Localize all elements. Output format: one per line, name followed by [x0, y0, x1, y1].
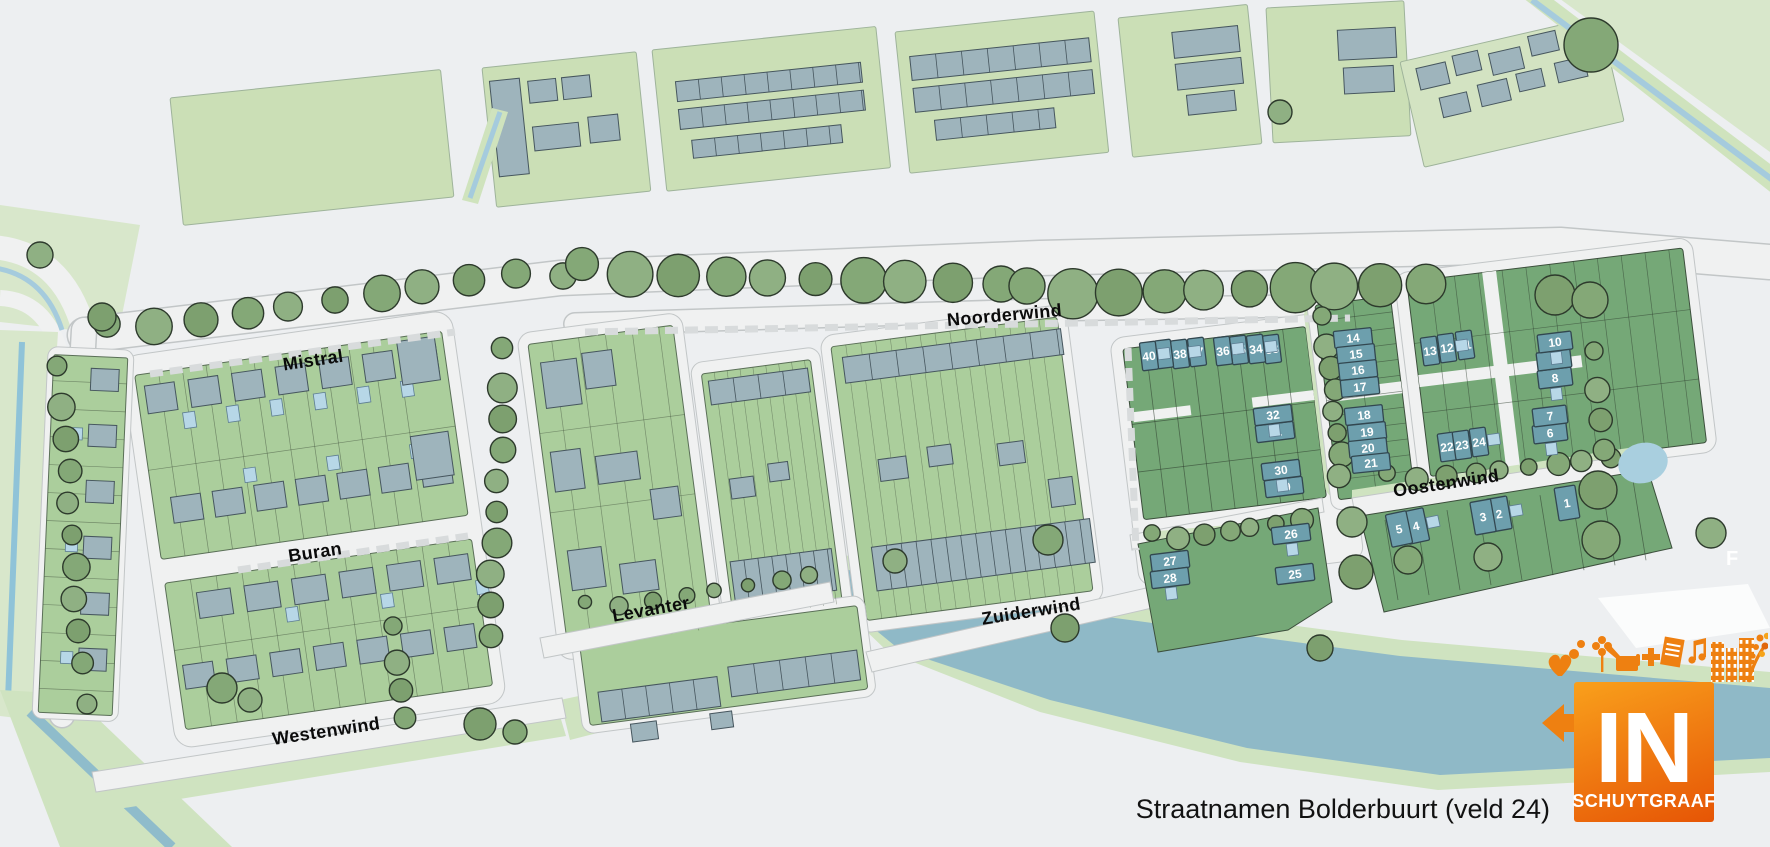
- tree-icon: [57, 492, 79, 514]
- lot-number: 32: [1266, 407, 1281, 423]
- tree-icon: [1593, 439, 1615, 461]
- tree-icon: [1585, 377, 1610, 402]
- tree-icon: [488, 373, 518, 403]
- tree-icon: [707, 257, 746, 296]
- tree-icon: [503, 720, 527, 744]
- lot-number: 16: [1351, 363, 1366, 378]
- tree-icon: [502, 259, 531, 288]
- tree-icon: [238, 688, 262, 712]
- tree-icon: [578, 595, 591, 608]
- tree-icon: [799, 263, 832, 296]
- tree-icon: [48, 393, 75, 420]
- tree-icon: [1051, 614, 1079, 642]
- logo-word: IN: [1595, 709, 1693, 787]
- tree-icon: [486, 501, 507, 522]
- tree-icon: [485, 469, 508, 492]
- tree-icon: [405, 270, 439, 304]
- lot-1: 1: [1554, 485, 1580, 521]
- lot-number: 23: [1454, 437, 1469, 453]
- tree-icon: [773, 571, 791, 589]
- tree-icon: [364, 275, 400, 311]
- tree-icon: [77, 694, 97, 714]
- tree-icon: [1323, 401, 1343, 421]
- lot-number: 13: [1422, 343, 1437, 359]
- tree-icon: [1241, 518, 1259, 536]
- tree-icon: [1143, 270, 1186, 313]
- note-paper-icon: [1660, 637, 1685, 668]
- tree-icon: [136, 308, 172, 344]
- tree-icon: [1144, 525, 1160, 541]
- tree-icon: [184, 303, 218, 337]
- tree-icon: [1095, 269, 1142, 316]
- logo-square: IN SCHUYTGRAAF: [1574, 682, 1714, 822]
- mistral-buran-westenwind-blocks: [120, 310, 507, 750]
- lot-number: 22: [1439, 439, 1454, 455]
- tree-icon: [1547, 453, 1570, 476]
- tree-icon: [1359, 264, 1402, 307]
- lot-number: 24: [1471, 434, 1486, 450]
- tree-icon: [1585, 342, 1603, 360]
- watering-can-icon: [1606, 646, 1640, 671]
- tree-icon: [389, 679, 412, 702]
- tree-icon: [207, 673, 237, 703]
- music-notes-icon: [1688, 638, 1706, 664]
- tree-icon: [1268, 100, 1292, 124]
- lot-number: 10: [1548, 334, 1563, 350]
- tree-icon: [1167, 527, 1190, 550]
- tree-icon: [62, 525, 82, 545]
- tree-icon: [1589, 408, 1612, 431]
- tree-icon: [933, 263, 972, 302]
- in-schuytgraaf-logo: IN SCHUYTGRAAF: [1540, 630, 1768, 830]
- tree-icon: [1009, 268, 1045, 304]
- tree-icon: [1339, 555, 1373, 589]
- tree-icon: [1184, 270, 1224, 310]
- tree-icon: [1313, 307, 1331, 325]
- lot-number: 28: [1163, 570, 1178, 586]
- field-block: [1118, 4, 1262, 157]
- tree-icon: [1582, 521, 1620, 559]
- tree-icon: [63, 553, 90, 580]
- lot-number: 18: [1357, 408, 1372, 423]
- tree-icon: [384, 650, 409, 675]
- tree-icon: [1579, 471, 1617, 509]
- tree-icon: [607, 251, 653, 297]
- field-block: [482, 52, 651, 207]
- tree-icon: [482, 528, 512, 558]
- tree-icon: [1307, 635, 1333, 661]
- tree-icon: [657, 254, 699, 296]
- site-plan-map: 1234567891011121314151617181920212223242…: [0, 0, 1770, 847]
- tree-icon: [566, 248, 599, 281]
- lot-number: 14: [1346, 331, 1361, 346]
- lot-number: 34: [1249, 341, 1264, 357]
- tree-icon: [478, 592, 503, 617]
- tree-icon: [384, 617, 402, 635]
- lot-number: 27: [1163, 553, 1178, 569]
- tree-icon: [1474, 543, 1502, 571]
- field-block: [652, 26, 891, 191]
- tree-icon: [61, 586, 86, 611]
- tree-icon: [1572, 282, 1608, 318]
- lot-17: 17: [1340, 377, 1380, 398]
- tree-icon: [53, 426, 78, 451]
- flower-icon: [1592, 636, 1612, 672]
- tree-icon: [883, 549, 907, 573]
- tree-icon: [27, 242, 53, 268]
- tree-icon: [58, 459, 82, 483]
- tree-icon: [1535, 275, 1575, 315]
- tree-icon: [490, 437, 515, 462]
- lot-23: 23: [1452, 430, 1472, 460]
- tree-icon: [1564, 18, 1618, 72]
- tree-icon: [884, 260, 926, 302]
- tree-icon: [322, 287, 348, 313]
- tree-icon: [1521, 459, 1537, 475]
- lot-number: 26: [1284, 526, 1299, 542]
- site-plan-page: 1234567891011121314151617181920212223242…: [0, 0, 1770, 847]
- tree-icon: [88, 303, 116, 331]
- lot-number: 19: [1360, 425, 1375, 440]
- tree-icon: [66, 619, 90, 643]
- lot-number: 12: [1439, 340, 1454, 356]
- tree-icon: [1194, 524, 1215, 545]
- logo-subtitle: SCHUYTGRAAF: [1572, 791, 1716, 812]
- leaf-icon: [1577, 640, 1585, 648]
- tree-icon: [491, 337, 512, 358]
- tree-icon: [232, 298, 263, 329]
- tree-icon: [1327, 464, 1350, 487]
- lot-number: 38: [1173, 346, 1188, 362]
- tree-icon: [1406, 264, 1446, 304]
- tree-icon: [47, 356, 67, 376]
- lot-number: 36: [1216, 343, 1231, 359]
- tree-icon: [479, 624, 502, 647]
- tree-icon: [801, 567, 818, 584]
- heart-icon: [1549, 655, 1572, 676]
- lot-number: 17: [1353, 380, 1368, 395]
- tree-icon: [1394, 546, 1422, 574]
- tree-icon: [1328, 424, 1346, 442]
- tree-icon: [1221, 521, 1241, 541]
- tree-icon: [741, 579, 754, 592]
- edge-cutoff-label: F: [1726, 548, 1738, 571]
- lot-number: 30: [1274, 462, 1289, 478]
- tree-icon: [274, 292, 303, 321]
- lot-number: 25: [1288, 566, 1303, 582]
- tree-icon: [1337, 507, 1367, 537]
- tree-icon: [72, 652, 94, 674]
- tree-icon: [1696, 518, 1726, 548]
- tree-icon: [1311, 263, 1358, 310]
- lot-number: 21: [1364, 456, 1379, 471]
- lot-7: 7: [1532, 405, 1568, 427]
- tree-icon: [464, 708, 496, 740]
- tree-icon: [841, 258, 887, 304]
- plus-icon: [1642, 648, 1660, 666]
- leaf-icon: [1569, 649, 1579, 659]
- tree-icon: [1231, 271, 1267, 307]
- tree-icon: [489, 405, 517, 433]
- tree-icon: [453, 265, 484, 296]
- city-buildings-icon: [1711, 638, 1754, 682]
- field-block: [895, 11, 1109, 173]
- lot-number: 15: [1349, 347, 1364, 362]
- lot-21: 21: [1351, 453, 1391, 474]
- lot-13: 13: [1420, 336, 1440, 366]
- tree-icon: [749, 260, 785, 296]
- tree-icon: [1033, 525, 1063, 555]
- tree-icon: [477, 560, 505, 588]
- map-caption: Straatnamen Bolderbuurt (veld 24): [1040, 794, 1550, 825]
- tree-icon: [707, 583, 721, 597]
- tree-icon: [1571, 450, 1592, 471]
- lot-number: 40: [1142, 348, 1157, 364]
- tree-icon: [394, 707, 416, 729]
